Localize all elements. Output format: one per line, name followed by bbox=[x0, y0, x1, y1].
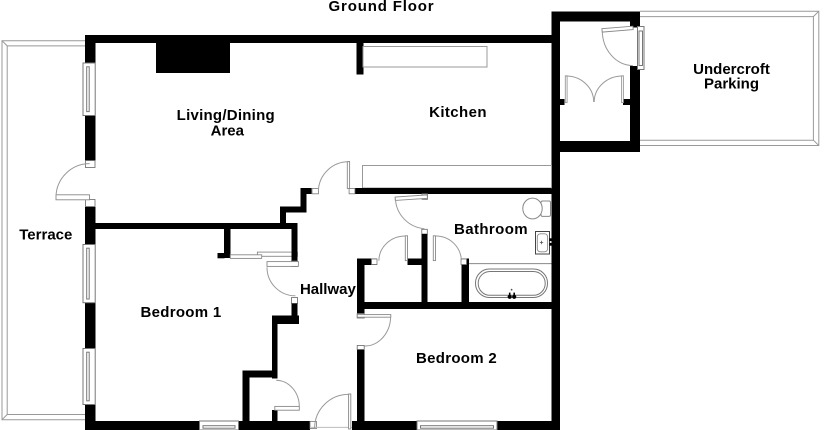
svg-text:Living/Dining: Living/Dining bbox=[177, 107, 275, 124]
svg-text:Terrace: Terrace bbox=[19, 227, 72, 244]
svg-text:Kitchen: Kitchen bbox=[429, 104, 487, 121]
svg-text:Parking: Parking bbox=[704, 75, 759, 92]
svg-text:Area: Area bbox=[211, 122, 245, 139]
svg-text:Hallway: Hallway bbox=[300, 281, 357, 298]
svg-text:Bedroom 1: Bedroom 1 bbox=[140, 304, 221, 321]
svg-text:Bathroom: Bathroom bbox=[454, 221, 528, 238]
svg-text:Ground Floor: Ground Floor bbox=[328, 0, 434, 15]
svg-text:Bedroom 2: Bedroom 2 bbox=[416, 350, 497, 367]
